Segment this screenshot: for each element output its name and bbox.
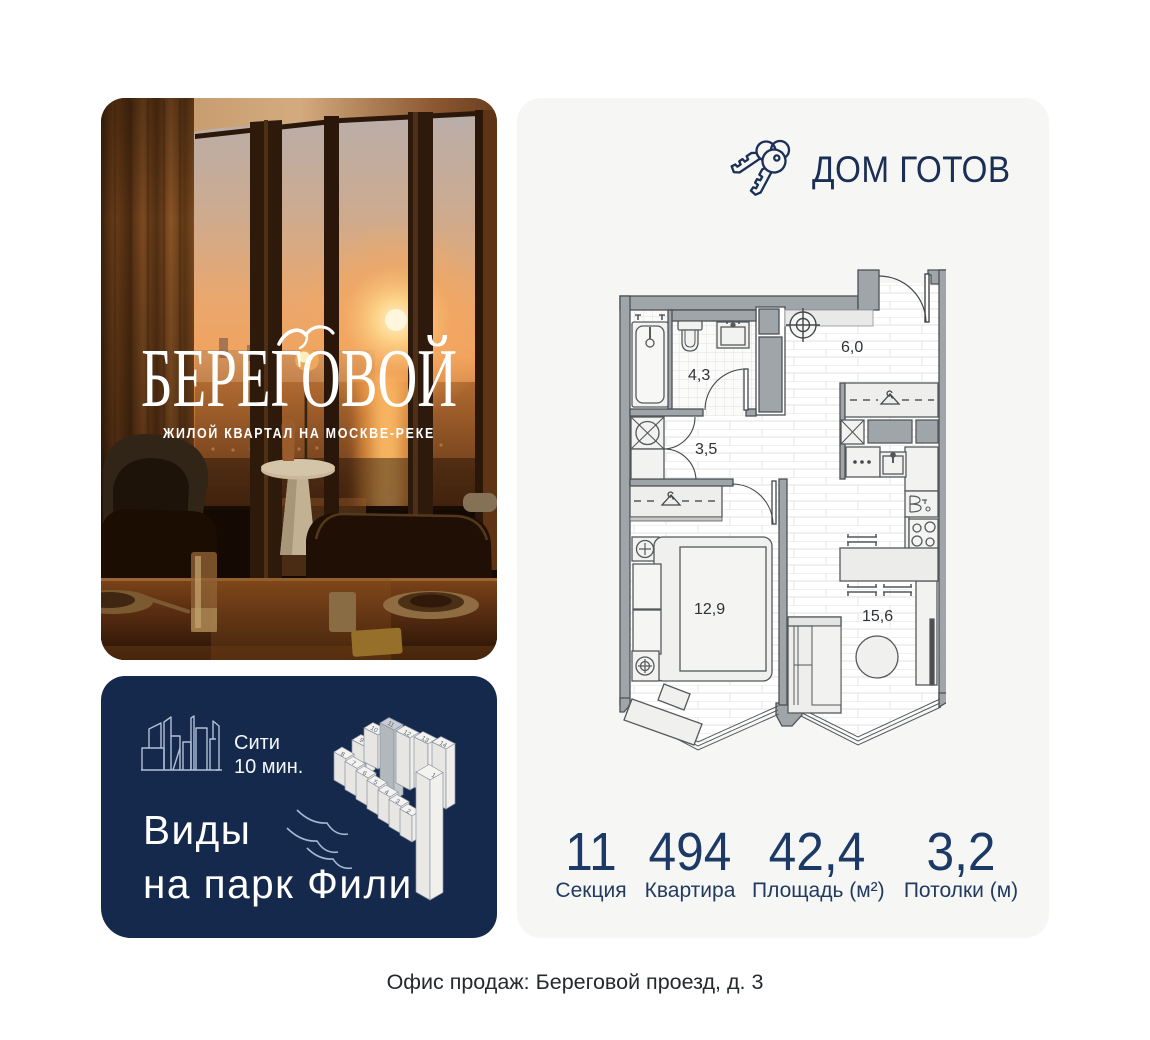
svg-text:на парк Фили: на парк Фили <box>143 861 413 907</box>
svg-text:ЖИЛОЙ КВАРТАЛ НА МОСКВЕ-РЕКЕ: ЖИЛОЙ КВАРТАЛ НА МОСКВЕ-РЕКЕ <box>162 424 435 442</box>
svg-text:4,3: 4,3 <box>688 367 710 384</box>
svg-text:3,5: 3,5 <box>695 441 717 458</box>
svg-text:БЕРЕГОВОЙ: БЕРЕГОВОЙ <box>141 332 457 425</box>
svg-text:6,0: 6,0 <box>841 339 863 356</box>
svg-text:10 мин.: 10 мин. <box>234 756 303 778</box>
svg-text:15,6: 15,6 <box>862 608 893 625</box>
svg-text:12,9: 12,9 <box>694 601 725 618</box>
svg-text:Сити: Сити <box>234 732 280 754</box>
svg-text:Виды: Виды <box>143 807 251 853</box>
